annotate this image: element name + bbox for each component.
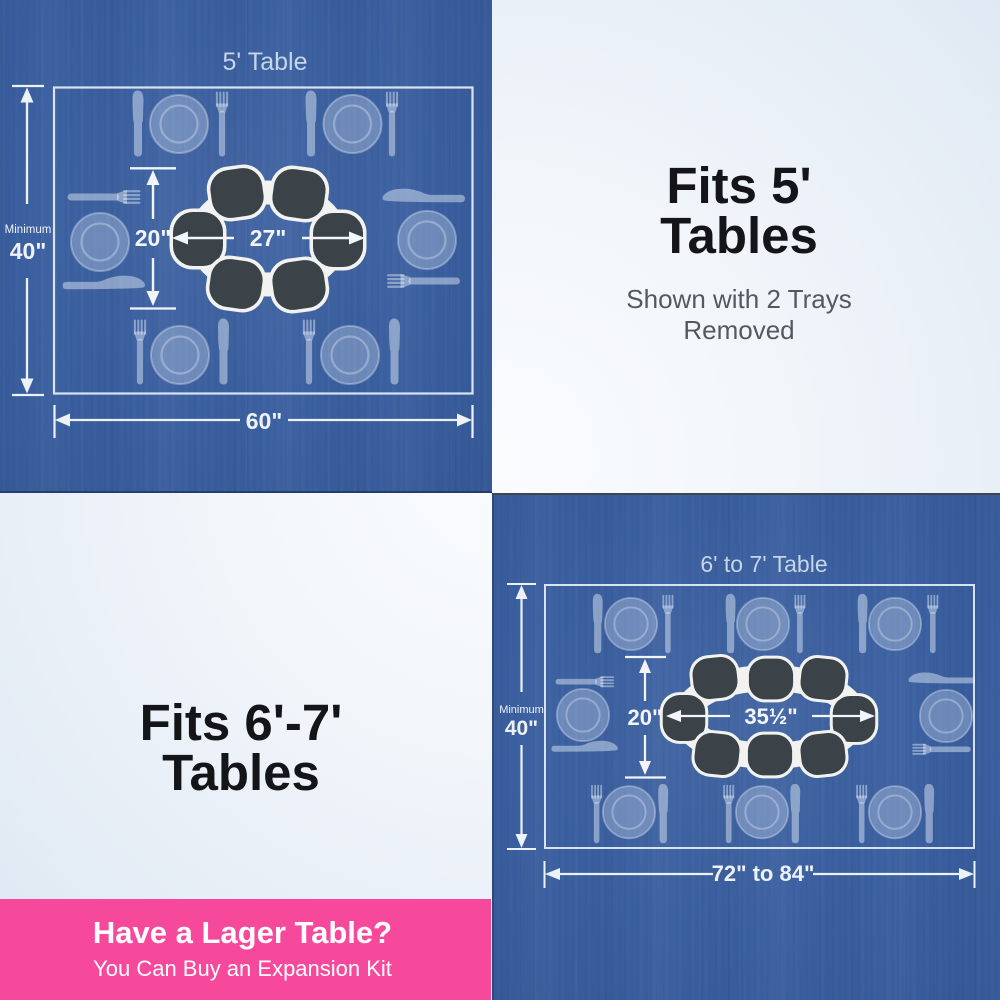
svg-text:72" to 84": 72" to 84" [712,861,815,886]
svg-text:6' to 7' Table: 6' to 7' Table [700,551,827,577]
svg-text:35½": 35½" [744,704,797,729]
svg-text:Minimum: Minimum [499,704,544,716]
svg-text:5' Table: 5' Table [223,48,308,76]
svg-text:40": 40" [505,717,538,740]
svg-text:27": 27" [250,225,287,251]
svg-text:20": 20" [628,705,663,730]
svg-text:40": 40" [10,238,47,264]
svg-text:60": 60" [246,408,283,434]
svg-text:Minimum: Minimum [5,224,52,236]
svg-text:20": 20" [135,225,172,251]
